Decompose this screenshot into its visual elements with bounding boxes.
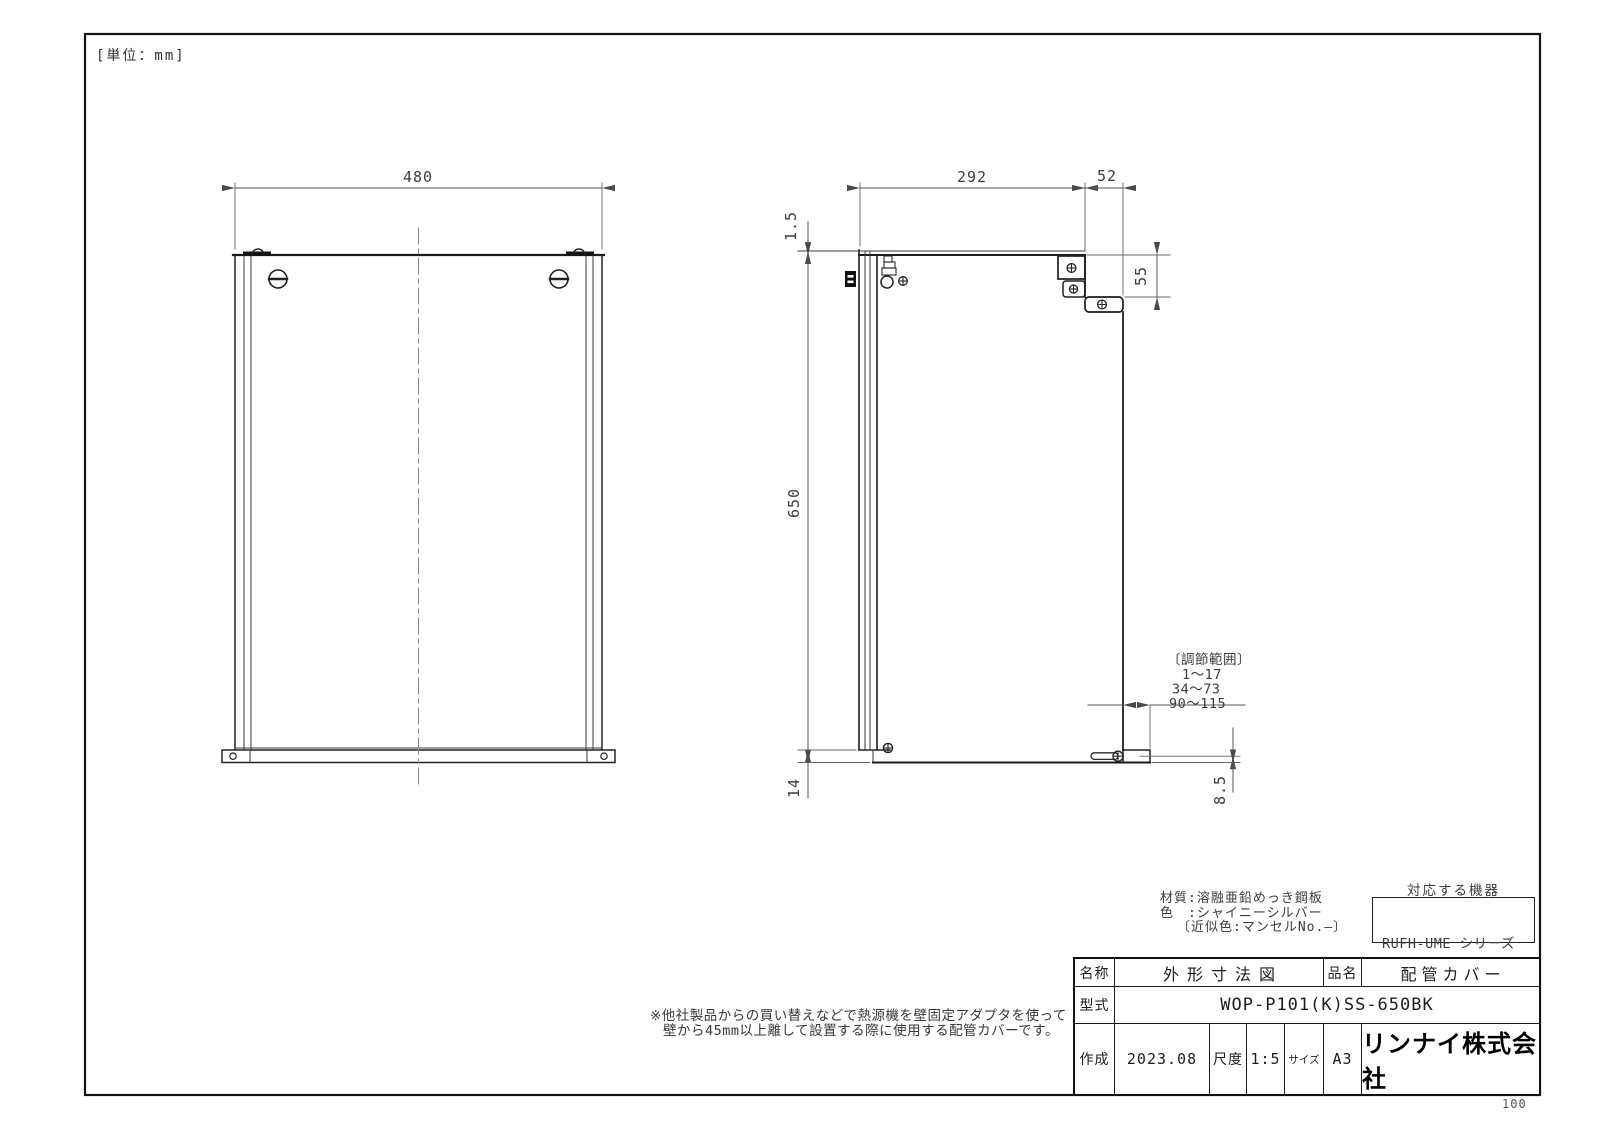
scale-label: 尺度: [1210, 1024, 1247, 1094]
side-view: 292 52 1.5 650 14: [782, 167, 1251, 805]
dim-52-text: 52: [1097, 167, 1117, 185]
compatible-units-box: RUFH-UME シリーズ RUFH-ME シリーズ: [1372, 897, 1535, 943]
item-label: 品名: [1324, 959, 1362, 986]
drawing-sheet: 480: [0, 0, 1600, 1131]
dim-foot: 8.5: [1140, 728, 1240, 805]
side-screw-top-left: [899, 277, 908, 286]
material-line3: 〔近似色:マンセルNo.—〕: [1160, 921, 1347, 936]
name-value: 外形寸法図: [1115, 959, 1324, 986]
side-top-hook: [882, 256, 896, 275]
front-screw-right: [550, 270, 568, 288]
title-block-row-name: 名称 外形寸法図 品名 配管カバー: [1075, 959, 1539, 986]
side-bottom-left-screw: [883, 743, 892, 752]
dim-292-text: 292: [957, 168, 987, 186]
title-block-row-meta: 作成 2023.08 尺度 1:5 サイズ A3 リンナイ株式会社: [1075, 1023, 1539, 1094]
title-block-row-model: 型式 WOP-P101(K)SS-650BK: [1075, 986, 1539, 1023]
model-label: 型式: [1075, 987, 1115, 1023]
company-name: リンナイ株式会社: [1362, 1024, 1539, 1094]
page-number: 100: [1502, 1097, 1527, 1111]
dim-side-top: 292 52: [860, 167, 1123, 295]
dim-wall-gap: 1.5: [782, 211, 808, 276]
material-line1: 材質:溶融亜鉛めっき鋼板: [1160, 892, 1347, 907]
front-screw-left: [269, 270, 287, 288]
material-line2: 色 :シャイニーシルバー: [1160, 907, 1347, 922]
size-label: サイズ: [1285, 1024, 1324, 1094]
material-notes: 材質:溶融亜鉛めっき鋼板 色 :シャイニーシルバー 〔近似色:マンセルNo.—〕: [1160, 892, 1347, 936]
model-value: WOP-P101(K)SS-650BK: [1115, 987, 1539, 1023]
adjust-range-3: 90～115: [1169, 696, 1226, 712]
front-view: 480: [222, 168, 615, 786]
dim-8p5-text: 8.5: [1211, 775, 1229, 805]
side-wall-clip: [845, 271, 856, 287]
compatible-units-title: 対応する機器: [1372, 879, 1535, 899]
dim-bottom-gap: 14: [785, 750, 870, 798]
unit-label: [単位：mm]: [96, 45, 186, 65]
created-label: 作成: [1075, 1024, 1115, 1094]
side-hole: [881, 276, 893, 288]
title-block: 名称 外形寸法図 品名 配管カバー 型式 WOP-P101(K)SS-650BK…: [1073, 957, 1541, 1096]
usage-note: ※他社製品からの買い替えなどで熱源機を壁固定アダプタを使って 壁から45mm以上…: [650, 1009, 1067, 1039]
item-value: 配管カバー: [1362, 959, 1539, 986]
size-value: A3: [1324, 1024, 1362, 1094]
compatible-series-1: RUFH-UME シリーズ: [1382, 936, 1534, 953]
side-wall-flange: [859, 250, 890, 763]
usage-note-line1: ※他社製品からの買い替えなどで熱源機を壁固定アダプタを使って: [650, 1009, 1067, 1024]
adjust-range-title: 〔調節範囲〕: [1167, 652, 1251, 668]
dim-height: 650: [785, 255, 808, 750]
created-value: 2023.08: [1115, 1024, 1210, 1094]
dim-480-text: 480: [403, 168, 433, 186]
name-label: 名称: [1075, 959, 1115, 986]
scale-value: 1:5: [1247, 1024, 1285, 1094]
side-bracket-top-right: [1058, 255, 1123, 312]
sheet-border: [85, 34, 1540, 1095]
dim-adjust-range: 〔調節範囲〕 1～17 34～73 90～115: [1088, 652, 1251, 748]
dim-1p5-text: 1.5: [782, 211, 800, 241]
dim-55-text: 55: [1132, 266, 1150, 286]
dim-650-text: 650: [785, 488, 803, 518]
dim-step: 55: [1087, 255, 1170, 297]
usage-note-line2: 壁から45mm以上離して設置する際に使用する配管カバーです。: [650, 1024, 1067, 1039]
dim-14-text: 14: [785, 778, 803, 798]
